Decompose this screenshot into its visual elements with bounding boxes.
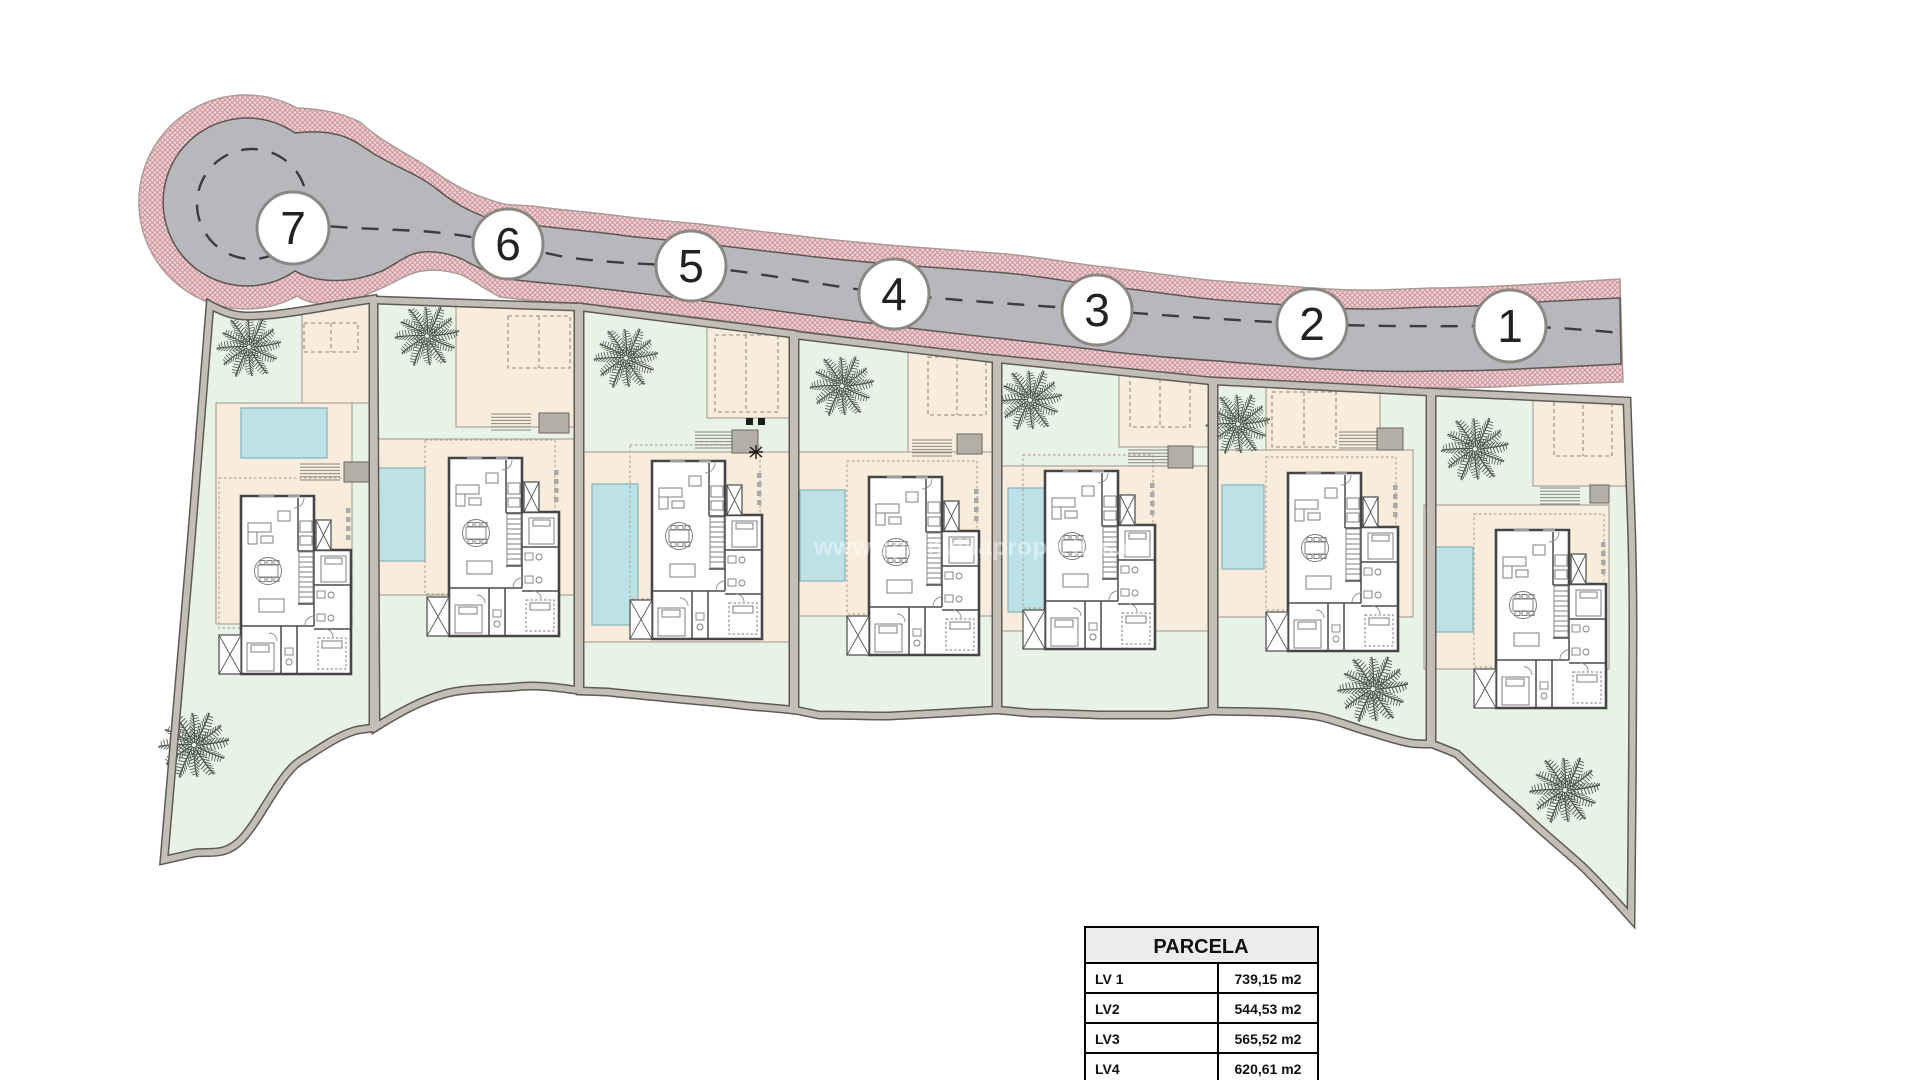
svg-text:PARCELA: PARCELA	[1153, 936, 1248, 958]
svg-text:739,15 m2: 739,15 m2	[1235, 971, 1302, 987]
svg-text:LV2: LV2	[1095, 1001, 1120, 1017]
svg-text:7: 7	[280, 202, 306, 254]
svg-text:1: 1	[1497, 300, 1523, 352]
svg-text:565,52 m2: 565,52 m2	[1235, 1031, 1302, 1047]
svg-text:5: 5	[678, 240, 704, 292]
svg-text:6: 6	[495, 218, 521, 270]
svg-text:2: 2	[1299, 298, 1325, 350]
svg-text:www.spainvillaproperties.es: www.spainvillaproperties.es	[813, 534, 1149, 561]
svg-text:3: 3	[1084, 284, 1110, 336]
svg-text:LV3: LV3	[1095, 1031, 1120, 1047]
svg-text:620,61 m2: 620,61 m2	[1235, 1061, 1302, 1077]
svg-text:LV4: LV4	[1095, 1061, 1120, 1077]
svg-text:4: 4	[881, 268, 907, 320]
svg-text:LV 1: LV 1	[1095, 971, 1124, 987]
svg-text:544,53 m2: 544,53 m2	[1235, 1001, 1302, 1017]
